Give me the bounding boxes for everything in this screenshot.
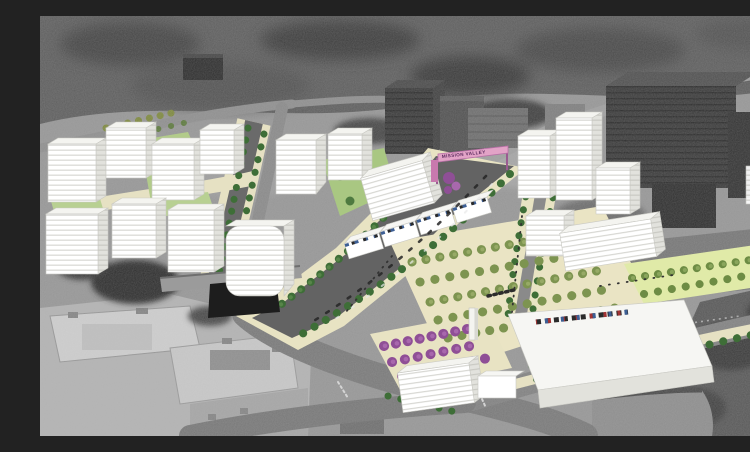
vertical-banner xyxy=(431,160,438,182)
obelisk xyxy=(469,308,478,340)
aerial-rendering: MISSION VALLEY xyxy=(40,16,750,436)
curved-corner-building xyxy=(226,220,294,296)
